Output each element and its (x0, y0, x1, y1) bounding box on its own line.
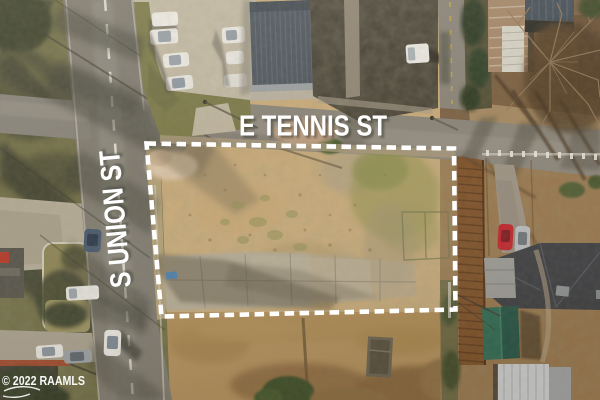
svg-text:E TENNIS ST: E TENNIS ST (239, 111, 387, 143)
svg-text:© 2022 RAAMLS: © 2022 RAAMLS (2, 373, 85, 388)
